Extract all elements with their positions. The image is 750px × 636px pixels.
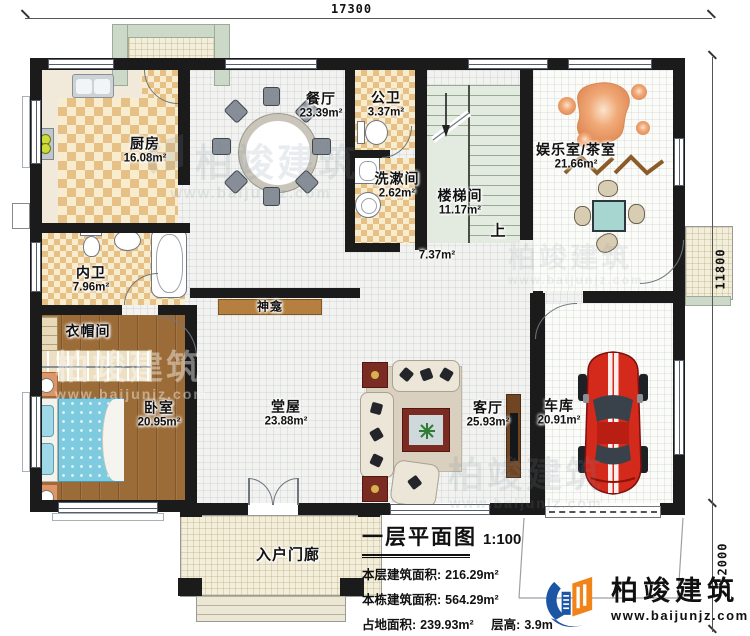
back-porch-beam [112, 24, 230, 38]
title-row-floor-area: 本层建筑面积:216.29m² [362, 564, 553, 583]
wall-bath-cloak [30, 305, 122, 315]
end-table [362, 476, 388, 502]
back-porch-column [214, 24, 230, 86]
porch-pillar [178, 578, 202, 596]
tea-chair [598, 180, 618, 197]
window-dining-north [225, 59, 317, 69]
window-ledge [22, 392, 30, 472]
window-garage-east [674, 360, 684, 455]
room-label-kitchen: 厨房 16.08m² [124, 137, 167, 166]
wall-stairs-east [520, 58, 533, 240]
entry-steps [196, 595, 346, 622]
room-label-living: 客厅 25.93m² [467, 401, 510, 430]
tea-table [592, 200, 626, 232]
dining-chair [263, 87, 280, 106]
sofa-pillow [370, 402, 383, 415]
shrine-label: 神龛 [257, 300, 283, 313]
plan-title: 一层平面图1:100 [362, 521, 553, 551]
wall-shrine [190, 288, 360, 298]
dimension-line-right [712, 57, 713, 632]
room-label-entertainment: 娱乐室/茶室 21.66m² [536, 143, 616, 172]
room-label-main-hall: 堂屋 23.88m² [265, 400, 308, 429]
wall-kitchen-dining [178, 58, 190, 185]
window-bath-west [31, 242, 41, 292]
wall-south-garage [660, 503, 685, 515]
title-block: 一层平面图1:100 本层建筑面积:216.29m² 本栋建筑面积:564.29… [362, 521, 553, 633]
dining-chair [312, 138, 331, 155]
brand-url: www.baijunjz.com [611, 608, 749, 623]
wall-garage-north [583, 291, 673, 303]
sofa-pillow [369, 427, 384, 442]
wall-kitchen-bath [30, 223, 190, 233]
washbasin [114, 230, 141, 251]
end-table-decor [371, 485, 379, 493]
window-living-south [390, 504, 490, 515]
entry-porch-label: 入户门廊 [256, 548, 320, 565]
entry-door-leaf [248, 478, 250, 505]
tv-screen [510, 413, 518, 461]
sofa-pillow [419, 367, 433, 381]
sink-basin [76, 79, 92, 94]
kitchen-sink [72, 74, 114, 98]
stairs-up-label: 上 [490, 224, 505, 241]
dimension-top-value: 17300 [331, 2, 372, 16]
side-porch-step [685, 296, 731, 306]
window-kitchen-north [48, 59, 114, 69]
brand-text: 柏竣建筑 www.baijunjz.com [611, 578, 749, 623]
sofa-long [392, 360, 460, 392]
bathtub-inner [156, 234, 183, 293]
window-bedroom-west [31, 396, 41, 468]
toilet-tank [357, 121, 365, 144]
porch-pillar [180, 503, 202, 517]
floor-plan-canvas: 17300 11800 2000 [0, 0, 750, 636]
basin-inner [361, 198, 377, 214]
room-label-garage: 车库 20.91m² [538, 399, 581, 428]
window-kitchen-west [31, 100, 41, 164]
wall-washroom-south [345, 243, 400, 252]
sofa-pillow [407, 475, 422, 490]
brand-logo: 柏竣建筑 www.baijunjz.com [541, 567, 749, 633]
lounge-chair [389, 459, 441, 509]
window-stairs-north [468, 59, 548, 69]
stairs-arrow [427, 85, 522, 245]
window-entertainment-north [568, 59, 652, 69]
sofa-pillow [439, 367, 454, 382]
room-label-bedroom: 卧室 20.95m² [138, 401, 181, 430]
sports-car [577, 348, 649, 498]
end-table [362, 362, 388, 388]
porch-pillar [340, 578, 364, 596]
garage-door-dashes [549, 511, 657, 513]
sofa-side [360, 392, 394, 478]
room-label-private-bath: 内卫 7.96m² [73, 266, 109, 295]
plant-icon [418, 422, 436, 440]
back-porch-column [112, 24, 128, 86]
hall-area-label: 7.37m² [419, 250, 455, 263]
room-label-stairwell: 楼梯间 11.17m² [438, 189, 483, 218]
tea-chair [628, 204, 645, 224]
room-label-public-bath: 公卫 3.37m² [368, 91, 404, 120]
plan-scale: 1:100 [483, 531, 521, 548]
porch-pillar [358, 503, 380, 517]
window-entertainment-east [674, 138, 684, 186]
sink-basin [94, 79, 110, 94]
bed-sheet-fold [102, 399, 124, 481]
window-ledge [22, 96, 30, 168]
sofa-pillow [369, 453, 384, 468]
brand-logo-icon [541, 567, 607, 633]
end-table-decor [371, 371, 379, 379]
dimension-right-value: 11800 [714, 248, 728, 289]
door-side-west [12, 203, 30, 229]
title-row-footprint: 占地面积:239.93m² 层高:3.9m [362, 614, 553, 633]
wall-bath-east [415, 58, 427, 250]
wall-south-living [490, 503, 545, 515]
dining-table-set [232, 107, 310, 185]
brand-name: 柏竣建筑 [611, 578, 749, 605]
entry-door-leaf [297, 478, 299, 505]
dimension-line-top [25, 18, 712, 19]
dining-chair [212, 138, 231, 155]
room-label-dining: 餐厅 23.39m² [300, 92, 343, 121]
window-bedroom-south [58, 502, 158, 513]
room-label-cloakroom: 衣帽间 [66, 324, 111, 340]
window-ledge [52, 513, 164, 521]
sofa-pillow [399, 367, 414, 382]
dining-chair [263, 187, 280, 206]
title-underline [362, 554, 470, 558]
dimension-tick [707, 9, 716, 18]
toilet-bowl [83, 236, 100, 257]
dimension-tick [21, 9, 30, 18]
hanger-rod [37, 366, 151, 368]
tea-chair [574, 206, 591, 226]
coffee-table [402, 408, 450, 452]
garage-door [545, 506, 661, 518]
wall-bath-west [345, 58, 355, 250]
wall-garage-north [533, 291, 543, 303]
title-row-building-area: 本栋建筑面积:564.29m² [362, 589, 553, 608]
room-label-washroom: 洗漱间 2.62m² [375, 172, 420, 201]
